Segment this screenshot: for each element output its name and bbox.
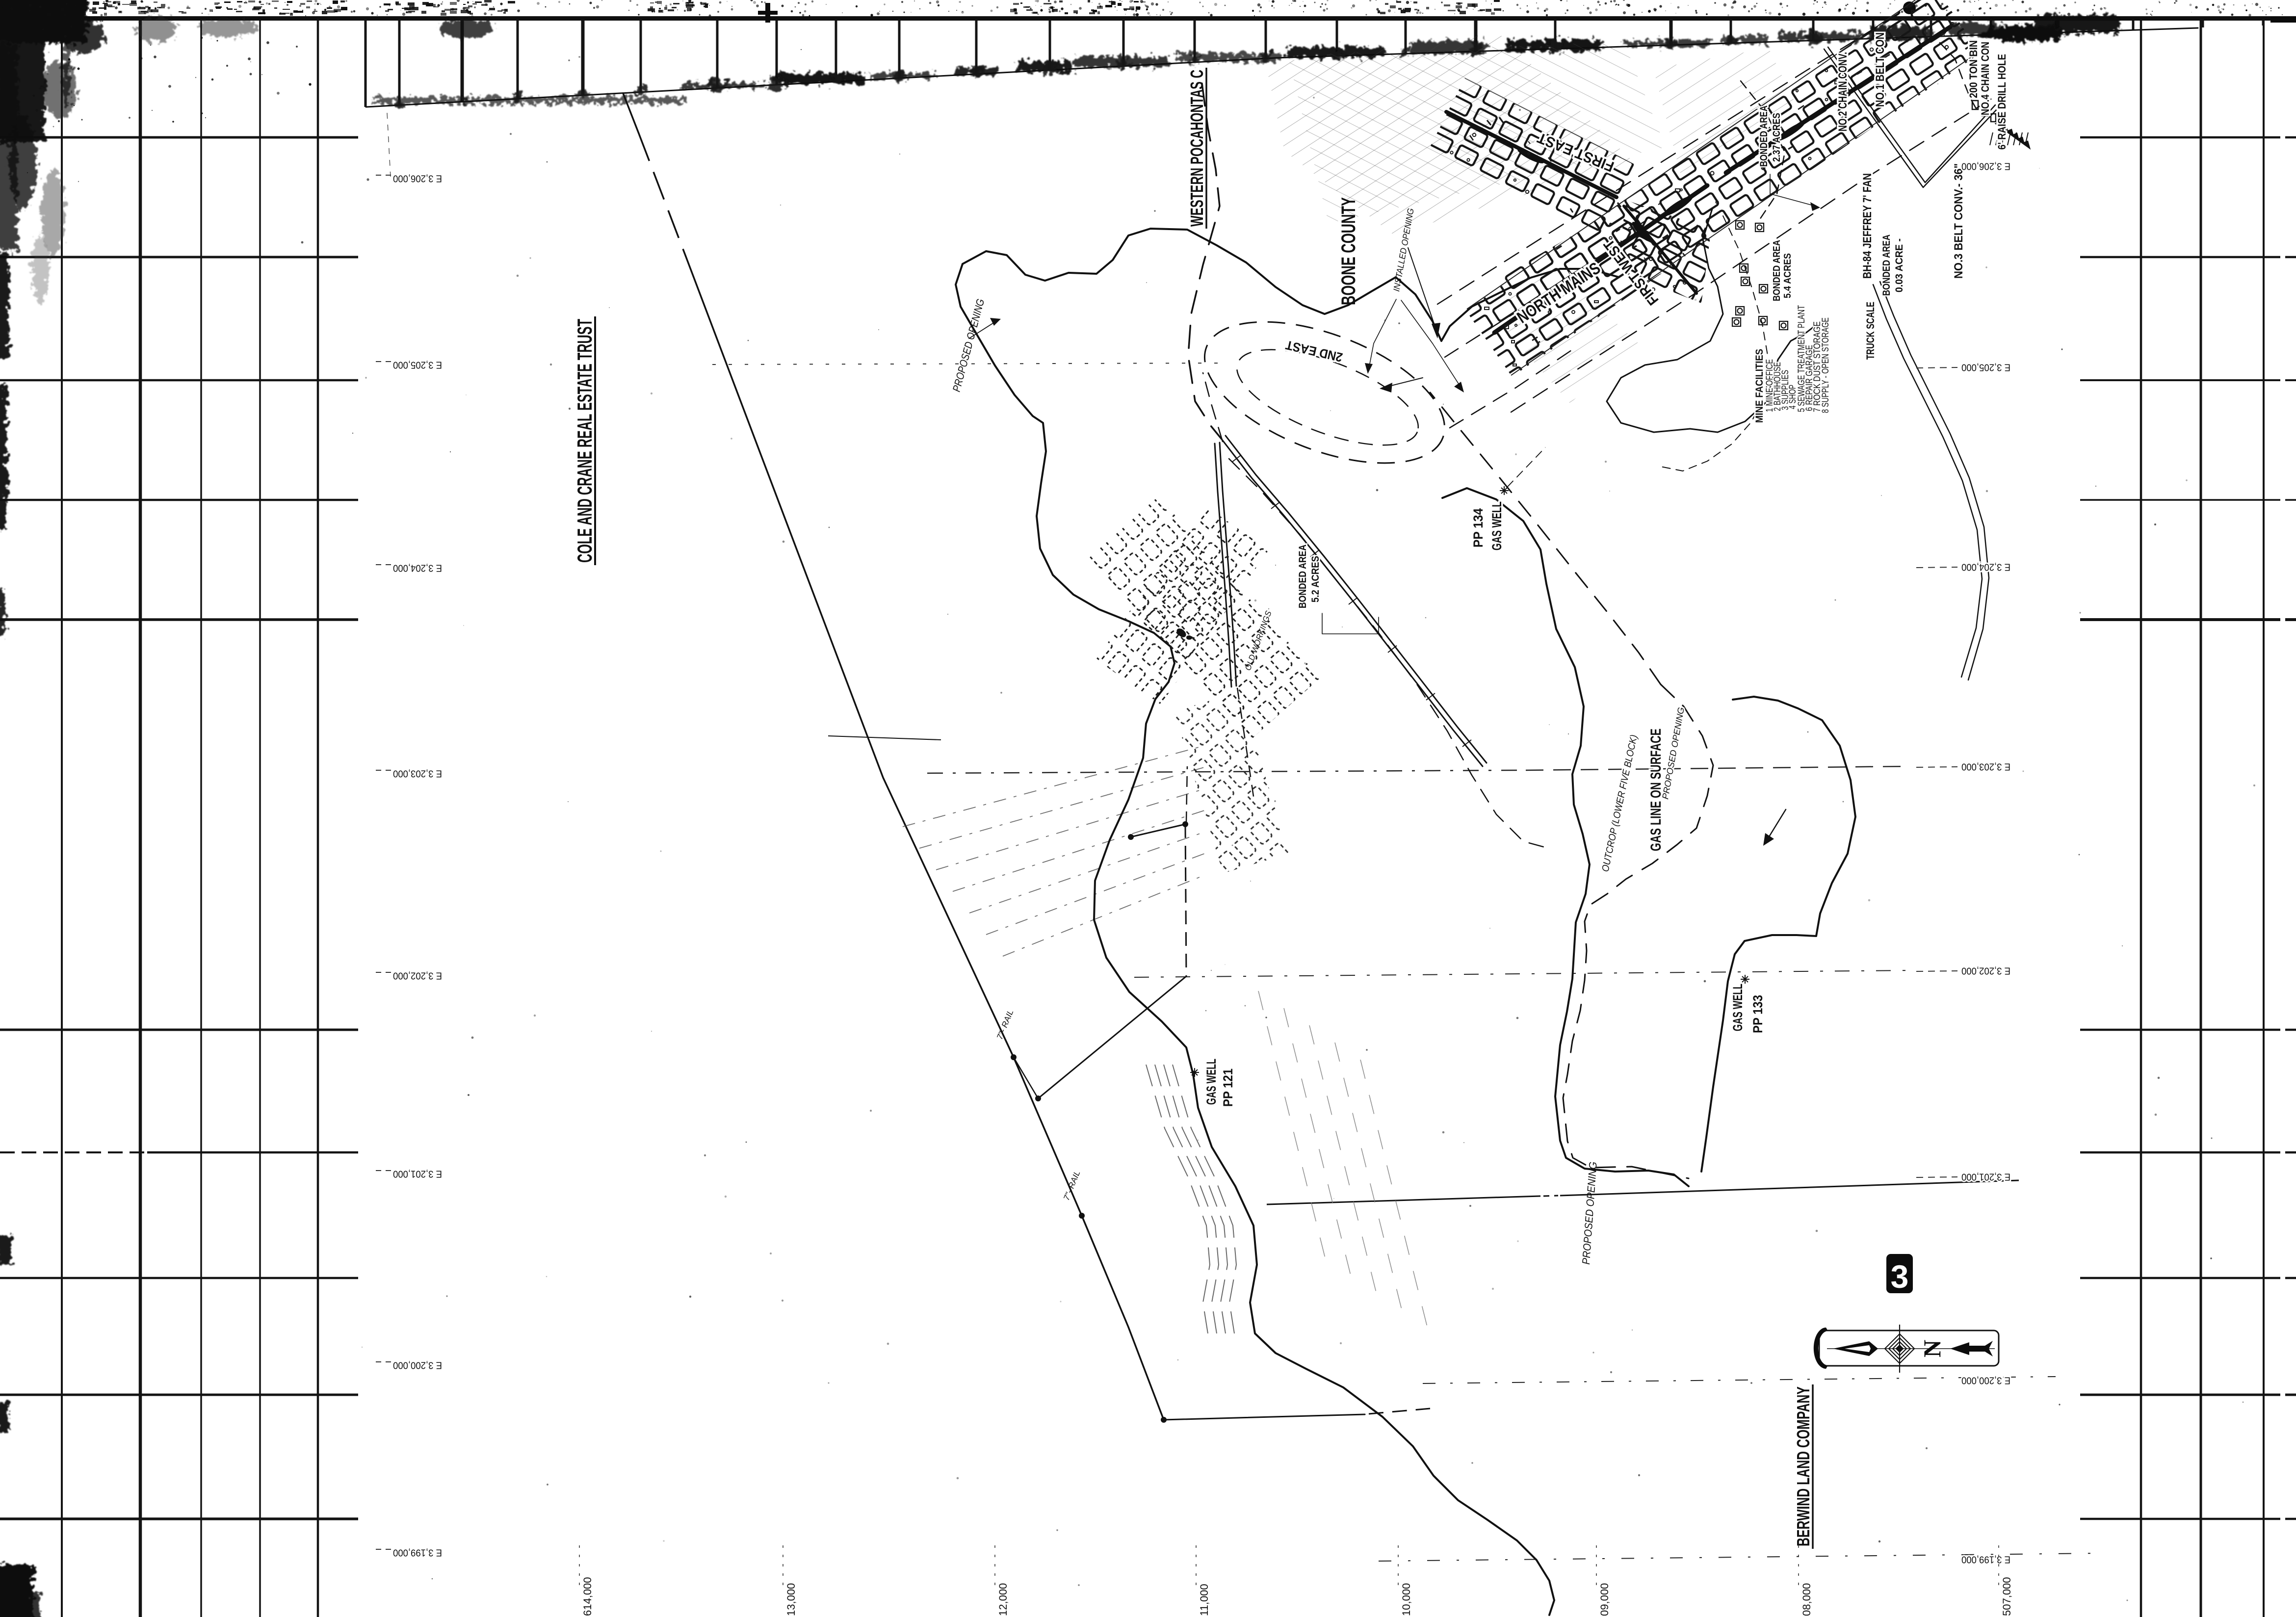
svg-text:MINE FACILITIES: MINE FACILITIES	[1754, 349, 1765, 423]
svg-text:GAS WELL: GAS WELL	[1489, 501, 1504, 550]
svg-text:BONDED AREA: BONDED AREA	[1881, 235, 1892, 296]
svg-text:3: 3	[1891, 1258, 1909, 1295]
svg-text:E 3,201,000: E 3,201,000	[393, 1169, 442, 1179]
svg-text:0.03 ACRE -: 0.03 ACRE -	[1894, 238, 1905, 292]
svg-text:BOONE COUNTY: BOONE COUNTY	[1338, 197, 1359, 305]
svg-text:WESTERN POCAHONTAS C: WESTERN POCAHONTAS C	[1187, 70, 1207, 227]
svg-text:BH-84 JEFFREY 7' FAN: BH-84 JEFFREY 7' FAN	[1861, 173, 1874, 279]
svg-text:TRUCK SCALE: TRUCK SCALE	[1864, 302, 1877, 360]
svg-text:2.37 ACRES: 2.37 ACRES	[1771, 113, 1782, 162]
svg-text:09,000: 09,000	[1598, 1583, 1611, 1616]
svg-text:507,000: 507,000	[2001, 1577, 2013, 1616]
svg-text:5.4 ACRES: 5.4 ACRES	[1782, 253, 1793, 298]
svg-text:E 3,200,000: E 3,200,000	[1961, 1375, 2010, 1386]
svg-text:6' RAISE DRILL HOLE: 6' RAISE DRILL HOLE	[1996, 54, 2008, 150]
svg-text:08,000: 08,000	[1800, 1583, 1813, 1616]
svg-text:614,000: 614,000	[581, 1577, 594, 1616]
svg-text:BONDED AREA: BONDED AREA	[1758, 105, 1770, 167]
svg-text:E 3,203,000: E 3,203,000	[393, 768, 442, 779]
svg-text:10,000: 10,000	[1400, 1583, 1412, 1616]
svg-text:E 3,202,000: E 3,202,000	[393, 970, 442, 981]
svg-text:E 3,206,000: E 3,206,000	[1961, 161, 2010, 172]
svg-text:BONDED AREA: BONDED AREA	[1297, 545, 1308, 608]
svg-text:E 3,205,000: E 3,205,000	[393, 360, 442, 370]
svg-text:PP 121: PP 121	[1221, 1069, 1235, 1107]
svg-text:5.2 ACRES: 5.2 ACRES	[1310, 556, 1321, 602]
svg-text:E 3,206,000: E 3,206,000	[393, 173, 442, 184]
svg-text:E 3,199,000: E 3,199,000	[393, 1547, 442, 1558]
svg-text:PP 134: PP 134	[1471, 508, 1486, 548]
svg-text:13,000: 13,000	[785, 1583, 797, 1616]
svg-text:NO.1 BELT CON: NO.1 BELT CON	[1874, 32, 1887, 107]
svg-text:E 3,199,000: E 3,199,000	[1961, 1554, 2010, 1565]
svg-text:BERWIND LAND COMPANY: BERWIND LAND COMPANY	[1793, 1386, 1813, 1546]
svg-text:E 3,201,000: E 3,201,000	[1961, 1172, 2010, 1182]
svg-text:NO.2 CHAIN CONV.: NO.2 CHAIN CONV.	[1836, 52, 1850, 131]
svg-text:N: N	[1918, 1340, 1946, 1357]
svg-text:12,000: 12,000	[997, 1583, 1009, 1616]
svg-text:NO.3 BELT CONV.- 36": NO.3 BELT CONV.- 36"	[1952, 163, 1965, 279]
svg-text:BONDED AREA: BONDED AREA	[1772, 240, 1782, 301]
svg-text:8 SUPPLY - OPEN STORAGE: 8 SUPPLY - OPEN STORAGE	[1821, 317, 1831, 413]
svg-text:11,000: 11,000	[1198, 1584, 1210, 1616]
svg-text:E 3,200,000: E 3,200,000	[393, 1360, 442, 1371]
svg-text:200 TON BIN: 200 TON BIN	[1967, 40, 1980, 98]
svg-text:E 3,202,000: E 3,202,000	[1961, 965, 2010, 976]
svg-text:GAS WELL: GAS WELL	[1730, 984, 1745, 1031]
svg-text:GAS WELL: GAS WELL	[1204, 1059, 1219, 1105]
svg-text:COLE AND CRANE REAL ESTATE TRU: COLE AND CRANE REAL ESTATE TRUST	[573, 319, 596, 563]
svg-text:NO.4 CHAIN CON: NO.4 CHAIN CON	[1979, 42, 1991, 115]
svg-text:PP 133: PP 133	[1750, 995, 1765, 1033]
svg-text:E 3,203,000: E 3,203,000	[1961, 761, 2010, 772]
svg-text:E 3,204,000: E 3,204,000	[393, 563, 442, 574]
svg-text:E 3,205,000: E 3,205,000	[1961, 362, 2010, 373]
svg-text:E 3,204,000: E 3,204,000	[1961, 562, 2010, 573]
